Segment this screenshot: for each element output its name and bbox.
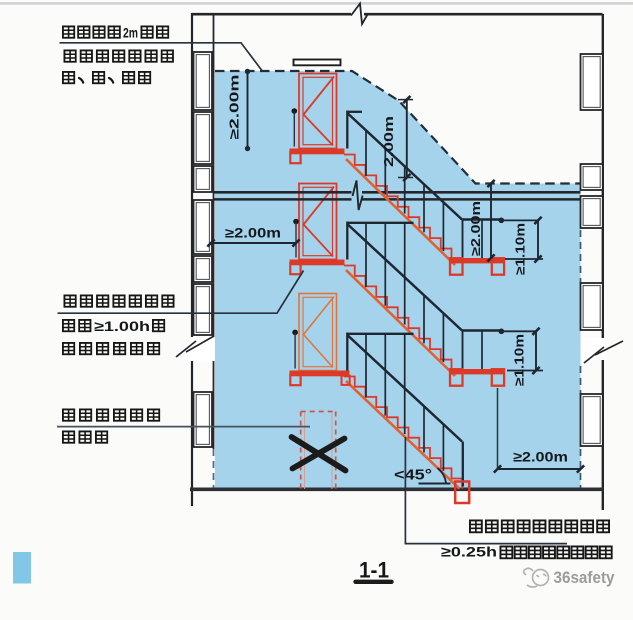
svg-text:36safety: 36safety	[554, 568, 615, 587]
svg-text:<45°: <45°	[394, 467, 432, 484]
svg-text:≥1.00h: ≥1.00h	[94, 319, 150, 334]
svg-text:≥0.25h: ≥0.25h	[441, 545, 497, 561]
svg-text:≥2.00m: ≥2.00m	[468, 201, 483, 256]
svg-text:≥2.00m: ≥2.00m	[227, 75, 242, 140]
svg-text:≥2.00m: ≥2.00m	[225, 226, 281, 241]
svg-text:2.00m: 2.00m	[381, 116, 396, 167]
svg-text:≥1.10m: ≥1.10m	[512, 334, 527, 386]
svg-text:≥1.10m: ≥1.10m	[513, 223, 528, 275]
svg-text:≥2.00m: ≥2.00m	[513, 449, 568, 465]
svg-text:1-1: 1-1	[359, 558, 389, 583]
svg-text:2m: 2m	[123, 26, 138, 41]
